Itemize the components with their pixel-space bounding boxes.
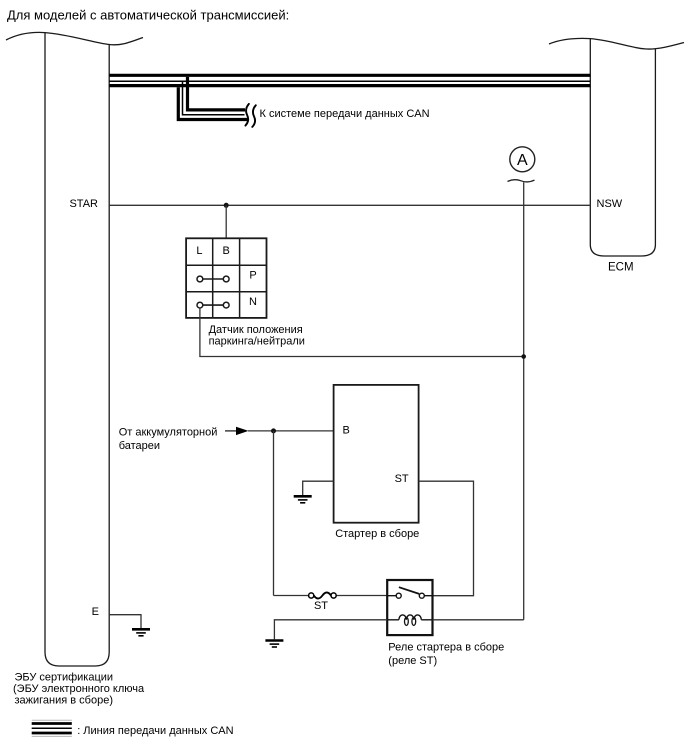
svg-text:Для моделей с автоматической т: Для моделей с автоматической трансмиссие… (7, 8, 289, 23)
svg-text:E: E (92, 606, 99, 618)
svg-text:зажигания в сборе): зажигания в сборе) (15, 695, 114, 707)
svg-text:ЭБУ сертификации: ЭБУ сертификации (15, 672, 114, 684)
svg-text:паркинга/нейтрали: паркинга/нейтрали (209, 336, 305, 348)
svg-text:: Линия передачи данных CAN: : Линия передачи данных CAN (77, 725, 233, 737)
svg-text:B: B (343, 424, 350, 436)
svg-text:B: B (223, 245, 230, 257)
svg-text:Стартер в сборе: Стартер в сборе (335, 528, 419, 540)
svg-text:NSW: NSW (597, 198, 623, 210)
svg-text:A: A (517, 152, 528, 169)
svg-text:STAR: STAR (69, 198, 98, 210)
svg-text:ST: ST (314, 600, 328, 612)
svg-text:ST: ST (395, 473, 409, 485)
svg-text:P: P (249, 269, 256, 281)
svg-text:От аккумуляторной: От аккумуляторной (119, 427, 218, 439)
svg-text:Реле стартера в сборе: Реле стартера в сборе (388, 642, 504, 654)
svg-text:N: N (249, 296, 257, 308)
svg-text:(ЭБУ электронного ключа: (ЭБУ электронного ключа (13, 683, 145, 695)
svg-text:(реле ST): (реле ST) (388, 655, 437, 667)
svg-text:ECM: ECM (608, 261, 634, 273)
svg-text:L: L (196, 245, 202, 257)
svg-text:Датчик положения: Датчик положения (209, 324, 303, 336)
svg-text:батареи: батареи (119, 440, 160, 452)
svg-text:К системе передачи данных CAN: К системе передачи данных CAN (260, 108, 430, 120)
